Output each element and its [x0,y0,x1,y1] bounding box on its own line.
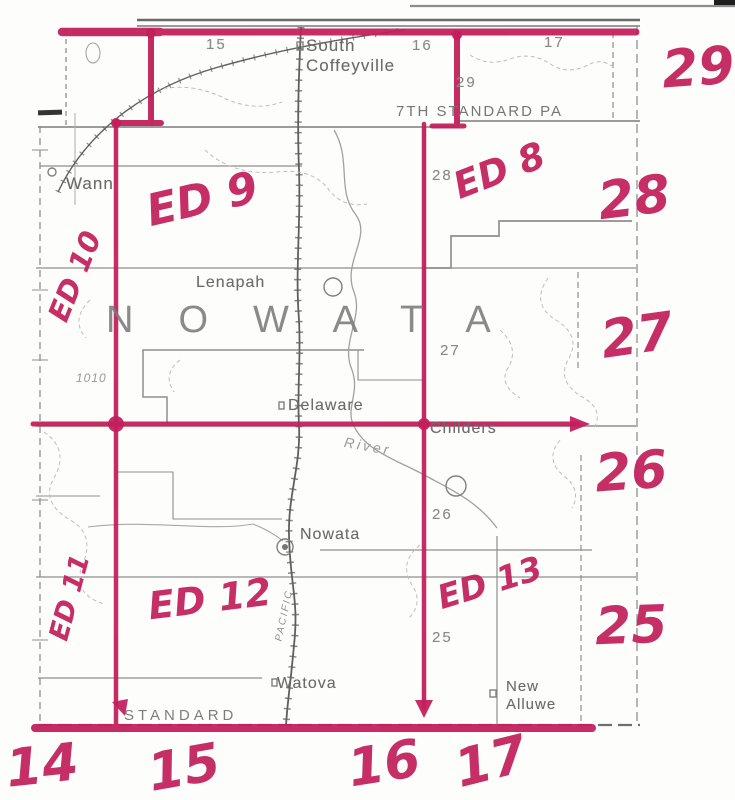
town-label-delaware: Delaware [288,397,364,416]
margin-number-26: 26 [593,444,669,501]
margin-number-25: 25 [594,599,668,653]
margin-number-15: 15 [144,736,224,800]
railroad-line [58,27,405,726]
arrowhead-icon [570,416,590,432]
printed-number-25: 25 [432,629,453,646]
town-label-wann: Wann [66,174,114,194]
elevation-label: 1010 [76,371,107,385]
printed-number-27: 27 [440,342,461,359]
margin-number-16: 16 [344,733,424,796]
map-linework [0,0,735,800]
printed-number-16: 16 [412,37,433,54]
margin-number-14: 14 [3,736,80,795]
scanned-map-page: NOWATA 7TH STANDARD PA STANDARD PACIFIC … [0,0,735,800]
town-marker-icon [48,168,56,176]
margin-number-27: 27 [598,305,677,367]
arrowhead-icon [415,700,433,718]
printed-number-15: 15 [206,36,227,53]
standard-parallel-label: 7TH STANDARD PA [396,103,563,120]
margin-number-28: 28 [595,168,673,228]
town-label-lenapah: Lenapah [196,274,265,293]
printed-number-17: 17 [544,34,565,51]
town-marker-icon [279,402,284,409]
county-seat-icon [282,544,288,550]
town-label-watova: Watova [277,675,337,694]
margin-number-29: 29 [660,40,735,97]
town-label-south-coffeyville: South Coffeyville [306,36,411,76]
district-boundary-lines [33,31,636,728]
standard-label: STANDARD [124,707,237,724]
town-label-childers: Childers [430,420,497,439]
county-name: NOWATA [106,299,536,342]
town-label-new-alluwe: New Alluwe [506,678,576,713]
town-label-nowata: Nowata [300,526,360,545]
town-marker-icon [490,690,496,697]
printed-number-26: 26 [432,506,453,523]
highway-shield-icon [324,278,342,296]
printed-number-29: 29 [456,74,477,91]
